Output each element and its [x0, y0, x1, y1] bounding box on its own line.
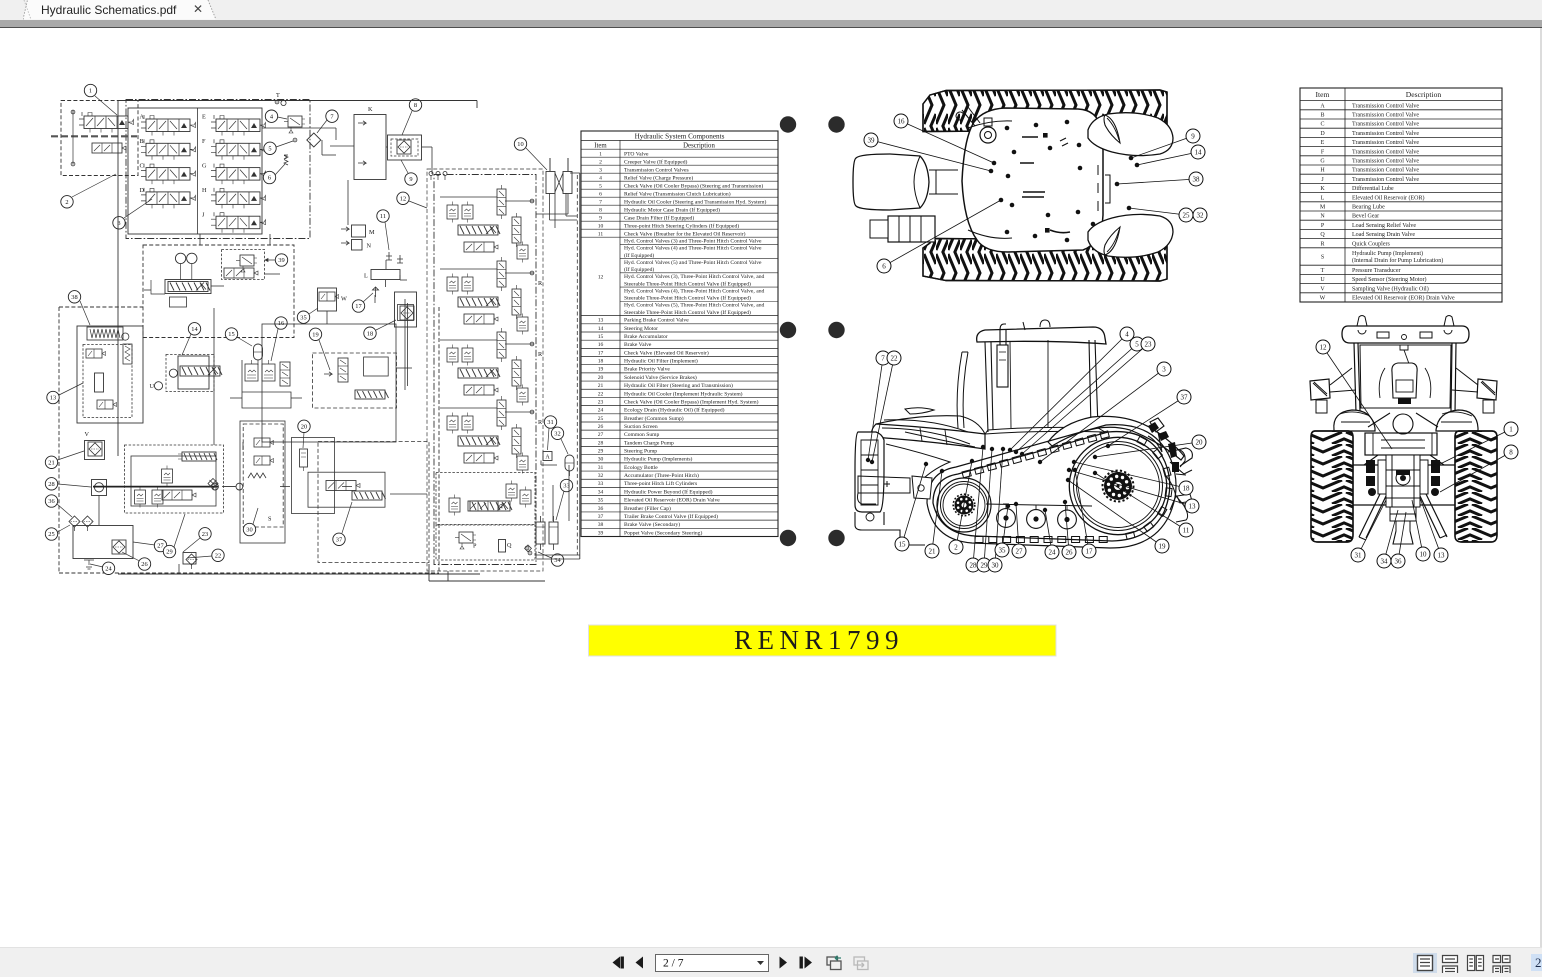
svg-text:1: 1 [599, 151, 602, 157]
svg-text:29: 29 [598, 449, 604, 455]
svg-text:Common Sump: Common Sump [624, 432, 659, 438]
svg-text:3: 3 [599, 167, 602, 173]
svg-text:5: 5 [599, 183, 602, 189]
svg-text:2: 2 [954, 543, 958, 551]
svg-text:V: V [1320, 286, 1325, 292]
svg-text:34: 34 [554, 557, 561, 564]
svg-text:Check Valve (Breather for the: Check Valve (Breather for the Elevated O… [624, 230, 746, 237]
svg-text:14: 14 [191, 326, 198, 333]
svg-text:F: F [1321, 149, 1325, 155]
svg-text:27: 27 [157, 543, 164, 550]
svg-text:Hydraulic Pump (Implements): Hydraulic Pump (Implements) [624, 456, 692, 463]
svg-text:Hydraulic Motor Case Drain (If: Hydraulic Motor Case Drain (If Equipped) [624, 206, 720, 213]
svg-text:R: R [1320, 241, 1324, 247]
svg-text:20: 20 [301, 423, 307, 430]
svg-text:(If Equipped): (If Equipped) [624, 252, 654, 259]
svg-text:6: 6 [268, 175, 271, 182]
svg-text:6: 6 [599, 191, 602, 197]
svg-text:4: 4 [599, 175, 602, 181]
svg-text:A: A [545, 455, 550, 461]
svg-text:F: F [202, 138, 206, 145]
svg-text:8: 8 [599, 207, 602, 213]
svg-text:35: 35 [300, 314, 306, 321]
svg-text:26: 26 [141, 561, 147, 568]
svg-text:17: 17 [1086, 547, 1094, 555]
svg-text:U: U [150, 383, 155, 390]
svg-text:2: 2 [65, 199, 68, 206]
svg-text:Relief Valve (Charge Pressure): Relief Valve (Charge Pressure) [624, 174, 693, 181]
svg-text:W: W [341, 296, 347, 303]
svg-text:32: 32 [1197, 211, 1205, 219]
svg-text:K: K [368, 106, 373, 113]
svg-text:26: 26 [1066, 548, 1074, 556]
svg-text:21: 21 [929, 547, 937, 555]
svg-text:T: T [1321, 268, 1325, 274]
svg-text:Breather (Common Sump): Breather (Common Sump) [624, 415, 684, 422]
svg-text:18: 18 [1183, 484, 1191, 492]
svg-text:Elevated Oil Reservoir (EOR) D: Elevated Oil Reservoir (EOR) Drain Valve [624, 497, 720, 504]
svg-text:Load Sensing Relief Valve: Load Sensing Relief Valve [1352, 222, 1416, 229]
svg-text:Transmission Control Valve: Transmission Control Valve [1352, 149, 1419, 155]
svg-text:C: C [140, 163, 144, 170]
svg-text:RENR1799: RENR1799 [734, 625, 904, 655]
svg-text:Hydraulic Oil Filter (Implemen: Hydraulic Oil Filter (Implement) [624, 358, 698, 365]
svg-text:13: 13 [1438, 551, 1446, 559]
svg-text:15: 15 [228, 331, 234, 338]
svg-text:32: 32 [598, 473, 604, 479]
svg-text:9: 9 [409, 176, 412, 183]
svg-text:Relief Valve (Transmission Clu: Relief Valve (Transmission Clutch Lubric… [624, 190, 731, 197]
svg-text:Case Drain Filter (If Equipped: Case Drain Filter (If Equipped) [624, 214, 694, 221]
svg-text:34: 34 [1381, 557, 1389, 565]
svg-text:(If Equipped): (If Equipped) [624, 266, 654, 273]
svg-text:15: 15 [899, 540, 907, 548]
svg-text:5: 5 [1135, 340, 1139, 348]
svg-text:Differential Lube: Differential Lube [1352, 185, 1394, 192]
svg-text:11: 11 [598, 231, 604, 237]
svg-text:29: 29 [981, 561, 989, 569]
svg-text:Brake Valve (Secondary): Brake Valve (Secondary) [624, 521, 680, 528]
svg-text:36: 36 [1395, 557, 1403, 565]
svg-text:Steering Motor: Steering Motor [624, 326, 658, 332]
svg-text:Description: Description [1406, 90, 1442, 99]
svg-text:P: P [473, 543, 477, 550]
svg-text:Transmission Control Valve: Transmission Control Valve [1352, 159, 1419, 165]
svg-text:23: 23 [202, 531, 208, 538]
svg-text:10: 10 [1420, 550, 1428, 558]
svg-text:M: M [1320, 205, 1326, 211]
svg-text:6: 6 [882, 262, 886, 270]
svg-text:37: 37 [598, 514, 604, 520]
svg-text:21: 21 [48, 459, 54, 466]
svg-text:J: J [1321, 177, 1324, 183]
svg-text:19: 19 [312, 331, 318, 338]
svg-text:Hyd. Control Valves (4), Three: Hyd. Control Valves (4), Three-Point Hit… [624, 287, 764, 294]
svg-text:Brake Accumulator: Brake Accumulator [624, 334, 668, 340]
svg-text:35: 35 [598, 498, 604, 504]
svg-text:Elevated Oil Reservoir (EOR): Elevated Oil Reservoir (EOR) [1352, 194, 1424, 201]
svg-text:R: R [538, 419, 543, 426]
svg-text:19: 19 [598, 367, 604, 373]
svg-text:Brake Priority Valve: Brake Priority Valve [624, 367, 670, 373]
svg-text:Hydraulic Oil Cooler (Steering: Hydraulic Oil Cooler (Steering and Trans… [624, 198, 766, 205]
svg-text:C: C [1320, 122, 1324, 128]
svg-text:Description: Description [683, 142, 715, 149]
svg-text:Bearing Lube: Bearing Lube [1352, 205, 1385, 211]
svg-text:A: A [1320, 103, 1325, 109]
svg-text:Check Valve (Oil Cooler Bypass: Check Valve (Oil Cooler Bypass) (Steerin… [624, 182, 763, 189]
svg-text:Trailer Brake Control Valve (I: Trailer Brake Control Valve (If Equipped… [624, 513, 718, 520]
svg-text:26: 26 [598, 424, 604, 430]
svg-text:PTO Valve: PTO Valve [624, 151, 649, 157]
svg-text:S: S [268, 516, 272, 523]
svg-text:28: 28 [970, 561, 978, 569]
svg-text:17: 17 [355, 303, 362, 310]
svg-text:L: L [1321, 195, 1325, 201]
svg-text:Hyd. Control Valves (5) and Th: Hyd. Control Valves (5) and Three-Point … [624, 259, 762, 266]
svg-text:Hydraulic Oil Cooler (Implemen: Hydraulic Oil Cooler (Implement Hydrauli… [624, 390, 743, 397]
svg-text:Transmission Control Valve: Transmission Control Valve [1352, 131, 1419, 137]
svg-text:34: 34 [598, 489, 604, 495]
svg-text:Three-point Hitch Lift Cylinde: Three-point Hitch Lift Cylinders [624, 480, 697, 487]
svg-text:23: 23 [1145, 340, 1153, 348]
svg-text:G: G [1320, 159, 1325, 165]
svg-text:Elevated Oil Reservoir (EOR) D: Elevated Oil Reservoir (EOR) Drain Valve [1352, 295, 1455, 302]
svg-text:15: 15 [598, 334, 604, 340]
svg-text:Hydraulic System Components: Hydraulic System Components [635, 132, 725, 140]
svg-text:Creeper Valve (If Equipped): Creeper Valve (If Equipped) [624, 158, 688, 165]
svg-text:10: 10 [598, 223, 604, 229]
svg-text:Item: Item [594, 142, 607, 149]
svg-text:25: 25 [1183, 211, 1191, 219]
svg-text:Three-point Hitch Steering Cyl: Three-point Hitch Steering Cylinders (If… [624, 222, 739, 229]
svg-text:28: 28 [598, 440, 604, 446]
svg-text:(Internal Drain for Pump Lubri: (Internal Drain for Pump Lubrication) [1352, 257, 1443, 264]
svg-text:36: 36 [598, 506, 604, 512]
svg-text:Transmission Control Valve: Transmission Control Valve [1352, 122, 1419, 128]
svg-text:13: 13 [598, 318, 604, 324]
svg-text:37: 37 [1181, 393, 1189, 401]
svg-text:Ecology Drain (Hydraulic Oil): Ecology Drain (Hydraulic Oil) (If Equipp… [624, 407, 725, 414]
svg-text:16: 16 [598, 342, 604, 348]
svg-text:Speed Sensor (Steering Motor): Speed Sensor (Steering Motor) [1352, 276, 1427, 283]
svg-text:10: 10 [517, 141, 523, 148]
svg-text:25: 25 [48, 531, 54, 538]
svg-text:38: 38 [1193, 175, 1201, 183]
svg-text:8: 8 [1509, 448, 1513, 456]
svg-text:8: 8 [414, 102, 417, 109]
svg-text:31: 31 [547, 419, 553, 426]
svg-text:U: U [1320, 277, 1325, 283]
svg-text:N: N [1320, 214, 1325, 220]
svg-text:2: 2 [599, 159, 602, 165]
svg-text:1: 1 [89, 88, 92, 95]
svg-text:27: 27 [598, 432, 604, 438]
svg-text:1: 1 [1509, 425, 1513, 433]
svg-text:35: 35 [999, 546, 1007, 554]
svg-text:18: 18 [367, 330, 373, 337]
svg-text:31: 31 [1355, 551, 1363, 559]
svg-text:Load Sensing Drain Valve: Load Sensing Drain Valve [1352, 232, 1415, 238]
svg-text:Poppet Valve (Secondary Steeri: Poppet Valve (Secondary Steering) [624, 529, 702, 536]
svg-text:M: M [369, 229, 375, 236]
svg-text:32: 32 [554, 430, 560, 437]
svg-text:N: N [367, 243, 372, 250]
svg-text:B: B [1320, 113, 1324, 119]
svg-text:27: 27 [1016, 547, 1024, 555]
svg-text:Transmission Control Valve: Transmission Control Valve [1352, 140, 1419, 146]
svg-text:12: 12 [400, 195, 406, 202]
svg-text:30: 30 [992, 561, 1000, 569]
svg-text:7: 7 [881, 354, 885, 362]
svg-text:D: D [1320, 131, 1325, 137]
svg-text:24: 24 [105, 565, 112, 572]
svg-text:Ecology Bottle: Ecology Bottle [624, 465, 658, 471]
svg-text:13: 13 [50, 395, 56, 402]
svg-text:28: 28 [48, 481, 54, 488]
svg-text:30: 30 [246, 527, 252, 534]
svg-text:P: P [1321, 223, 1325, 229]
svg-text:11: 11 [1183, 526, 1190, 534]
svg-text:J: J [202, 212, 205, 219]
svg-text:24: 24 [1049, 548, 1057, 556]
svg-text:33: 33 [598, 481, 604, 487]
svg-text:9: 9 [1191, 132, 1195, 140]
svg-text:19: 19 [1159, 542, 1167, 550]
svg-text:25: 25 [598, 416, 604, 422]
svg-text:Brake Valve: Brake Valve [624, 342, 652, 348]
svg-text:Transmission Control Valve: Transmission Control Valve [1352, 103, 1419, 109]
svg-text:39: 39 [598, 530, 604, 536]
svg-text:Parking Brake Control Valve: Parking Brake Control Valve [624, 318, 689, 324]
svg-text:9: 9 [599, 215, 602, 221]
svg-text:29: 29 [166, 549, 172, 556]
svg-text:14: 14 [598, 326, 604, 332]
svg-text:K: K [1320, 186, 1325, 192]
svg-text:Q: Q [507, 542, 512, 549]
svg-text:H: H [202, 187, 207, 194]
svg-text:12: 12 [598, 274, 604, 280]
svg-text:Accumulator (Three-Point Hitch: Accumulator (Three-Point Hitch) [624, 472, 699, 479]
svg-text:T: T [276, 92, 280, 99]
svg-text:11: 11 [380, 213, 386, 220]
svg-text:24: 24 [598, 408, 604, 414]
svg-text:37: 37 [336, 536, 343, 543]
svg-text:Transmission Control Valve: Transmission Control Valve [1352, 177, 1419, 183]
svg-text:Steerable Three-Point Hitch Co: Steerable Three-Point Hitch Control Valv… [624, 309, 751, 316]
svg-text:12: 12 [1320, 343, 1328, 351]
svg-text:Transmission Control Valves: Transmission Control Valves [624, 167, 689, 173]
svg-text:7: 7 [599, 199, 602, 205]
svg-text:Pressure Transducer: Pressure Transducer [1352, 268, 1401, 274]
svg-text:Check Valve (Oil Cooler Bypass: Check Valve (Oil Cooler Bypass) (Impleme… [624, 398, 759, 405]
svg-text:R: R [538, 351, 543, 358]
svg-text:Transmission Control Valve: Transmission Control Valve [1352, 168, 1419, 174]
svg-text:E: E [1321, 140, 1325, 146]
svg-text:Transmission Control Valve: Transmission Control Valve [1352, 113, 1419, 119]
svg-text:18: 18 [598, 359, 604, 365]
svg-text:Steerable Three-Point Hitch Co: Steerable Three-Point Hitch Control Valv… [624, 280, 751, 287]
svg-text:V: V [85, 431, 90, 438]
svg-text:38: 38 [598, 522, 604, 528]
svg-text:Hydraulic Power Beyond (If Equ: Hydraulic Power Beyond (If Equipped) [624, 488, 713, 495]
svg-text:Quick Couplers: Quick Couplers [1352, 241, 1390, 247]
svg-text:W: W [1320, 296, 1326, 302]
svg-text:17: 17 [598, 350, 604, 356]
svg-text:36: 36 [48, 498, 54, 505]
svg-text:2: 2 [1535, 955, 1542, 970]
svg-text:Sampling Valve (Hydraulic Oil): Sampling Valve (Hydraulic Oil) [1352, 285, 1429, 292]
svg-text:Suction Screen: Suction Screen [624, 424, 658, 430]
svg-text:39: 39 [278, 257, 284, 264]
svg-text:13: 13 [1189, 502, 1197, 510]
svg-text:Hyd. Control Valves (5), Three: Hyd. Control Valves (5), Three-Point Hit… [624, 302, 764, 309]
svg-text:G: G [202, 163, 207, 170]
svg-text:Hydraulic Pump (Implement): Hydraulic Pump (Implement) [1352, 250, 1423, 257]
svg-text:Hydraulic Oil Filter (Steering: Hydraulic Oil Filter (Steering and Trans… [624, 382, 733, 389]
svg-text:Solenoid Valve (Service Brakes: Solenoid Valve (Service Brakes) [624, 374, 697, 381]
svg-text:Check Valve (Elevated Oil Rese: Check Valve (Elevated Oil Reservoir) [624, 349, 709, 356]
svg-text:Q: Q [1320, 232, 1325, 238]
svg-text:Breather (Filler Cap): Breather (Filler Cap) [624, 505, 671, 512]
svg-text:Bevel Gear: Bevel Gear [1352, 214, 1379, 220]
svg-text:14: 14 [1195, 148, 1203, 156]
svg-text:2 / 7: 2 / 7 [663, 958, 684, 970]
svg-text:39: 39 [868, 136, 876, 144]
svg-text:Hyd. Control Valves (4) and Th: Hyd. Control Valves (4) and Three-Point … [624, 245, 762, 252]
svg-text:4: 4 [1125, 330, 1129, 338]
svg-text:Steering Pump: Steering Pump [624, 449, 657, 455]
svg-text:22: 22 [215, 552, 221, 559]
svg-text:5: 5 [268, 145, 271, 152]
svg-text:21: 21 [598, 383, 604, 389]
svg-text:3: 3 [1162, 365, 1166, 373]
svg-text:Item: Item [1316, 90, 1330, 99]
svg-text:22: 22 [598, 391, 604, 397]
svg-text:16: 16 [898, 117, 906, 125]
svg-text:Steerable Three-Point Hitch Co: Steerable Three-Point Hitch Control Valv… [624, 295, 751, 302]
svg-text:23: 23 [598, 399, 604, 405]
svg-text:Hyd. Control Valves (3), Three: Hyd. Control Valves (3), Three-Point Hit… [624, 273, 764, 280]
svg-text:20: 20 [598, 375, 604, 381]
svg-text:38: 38 [71, 294, 77, 301]
svg-text:B: B [140, 138, 144, 145]
svg-text:L: L [364, 273, 368, 280]
svg-text:E: E [202, 114, 206, 121]
svg-text:31: 31 [598, 465, 604, 471]
svg-text:Tandem Charge Pump: Tandem Charge Pump [624, 440, 674, 446]
svg-text:22: 22 [891, 354, 899, 362]
svg-text:H: H [1320, 168, 1325, 174]
svg-text:R: R [538, 280, 543, 287]
svg-text:30: 30 [598, 457, 604, 463]
svg-text:20: 20 [1196, 438, 1204, 446]
svg-text:S: S [1321, 254, 1324, 260]
svg-text:Hyd. Control Valves (3) and Th: Hyd. Control Valves (3) and Three-Point … [624, 238, 762, 245]
